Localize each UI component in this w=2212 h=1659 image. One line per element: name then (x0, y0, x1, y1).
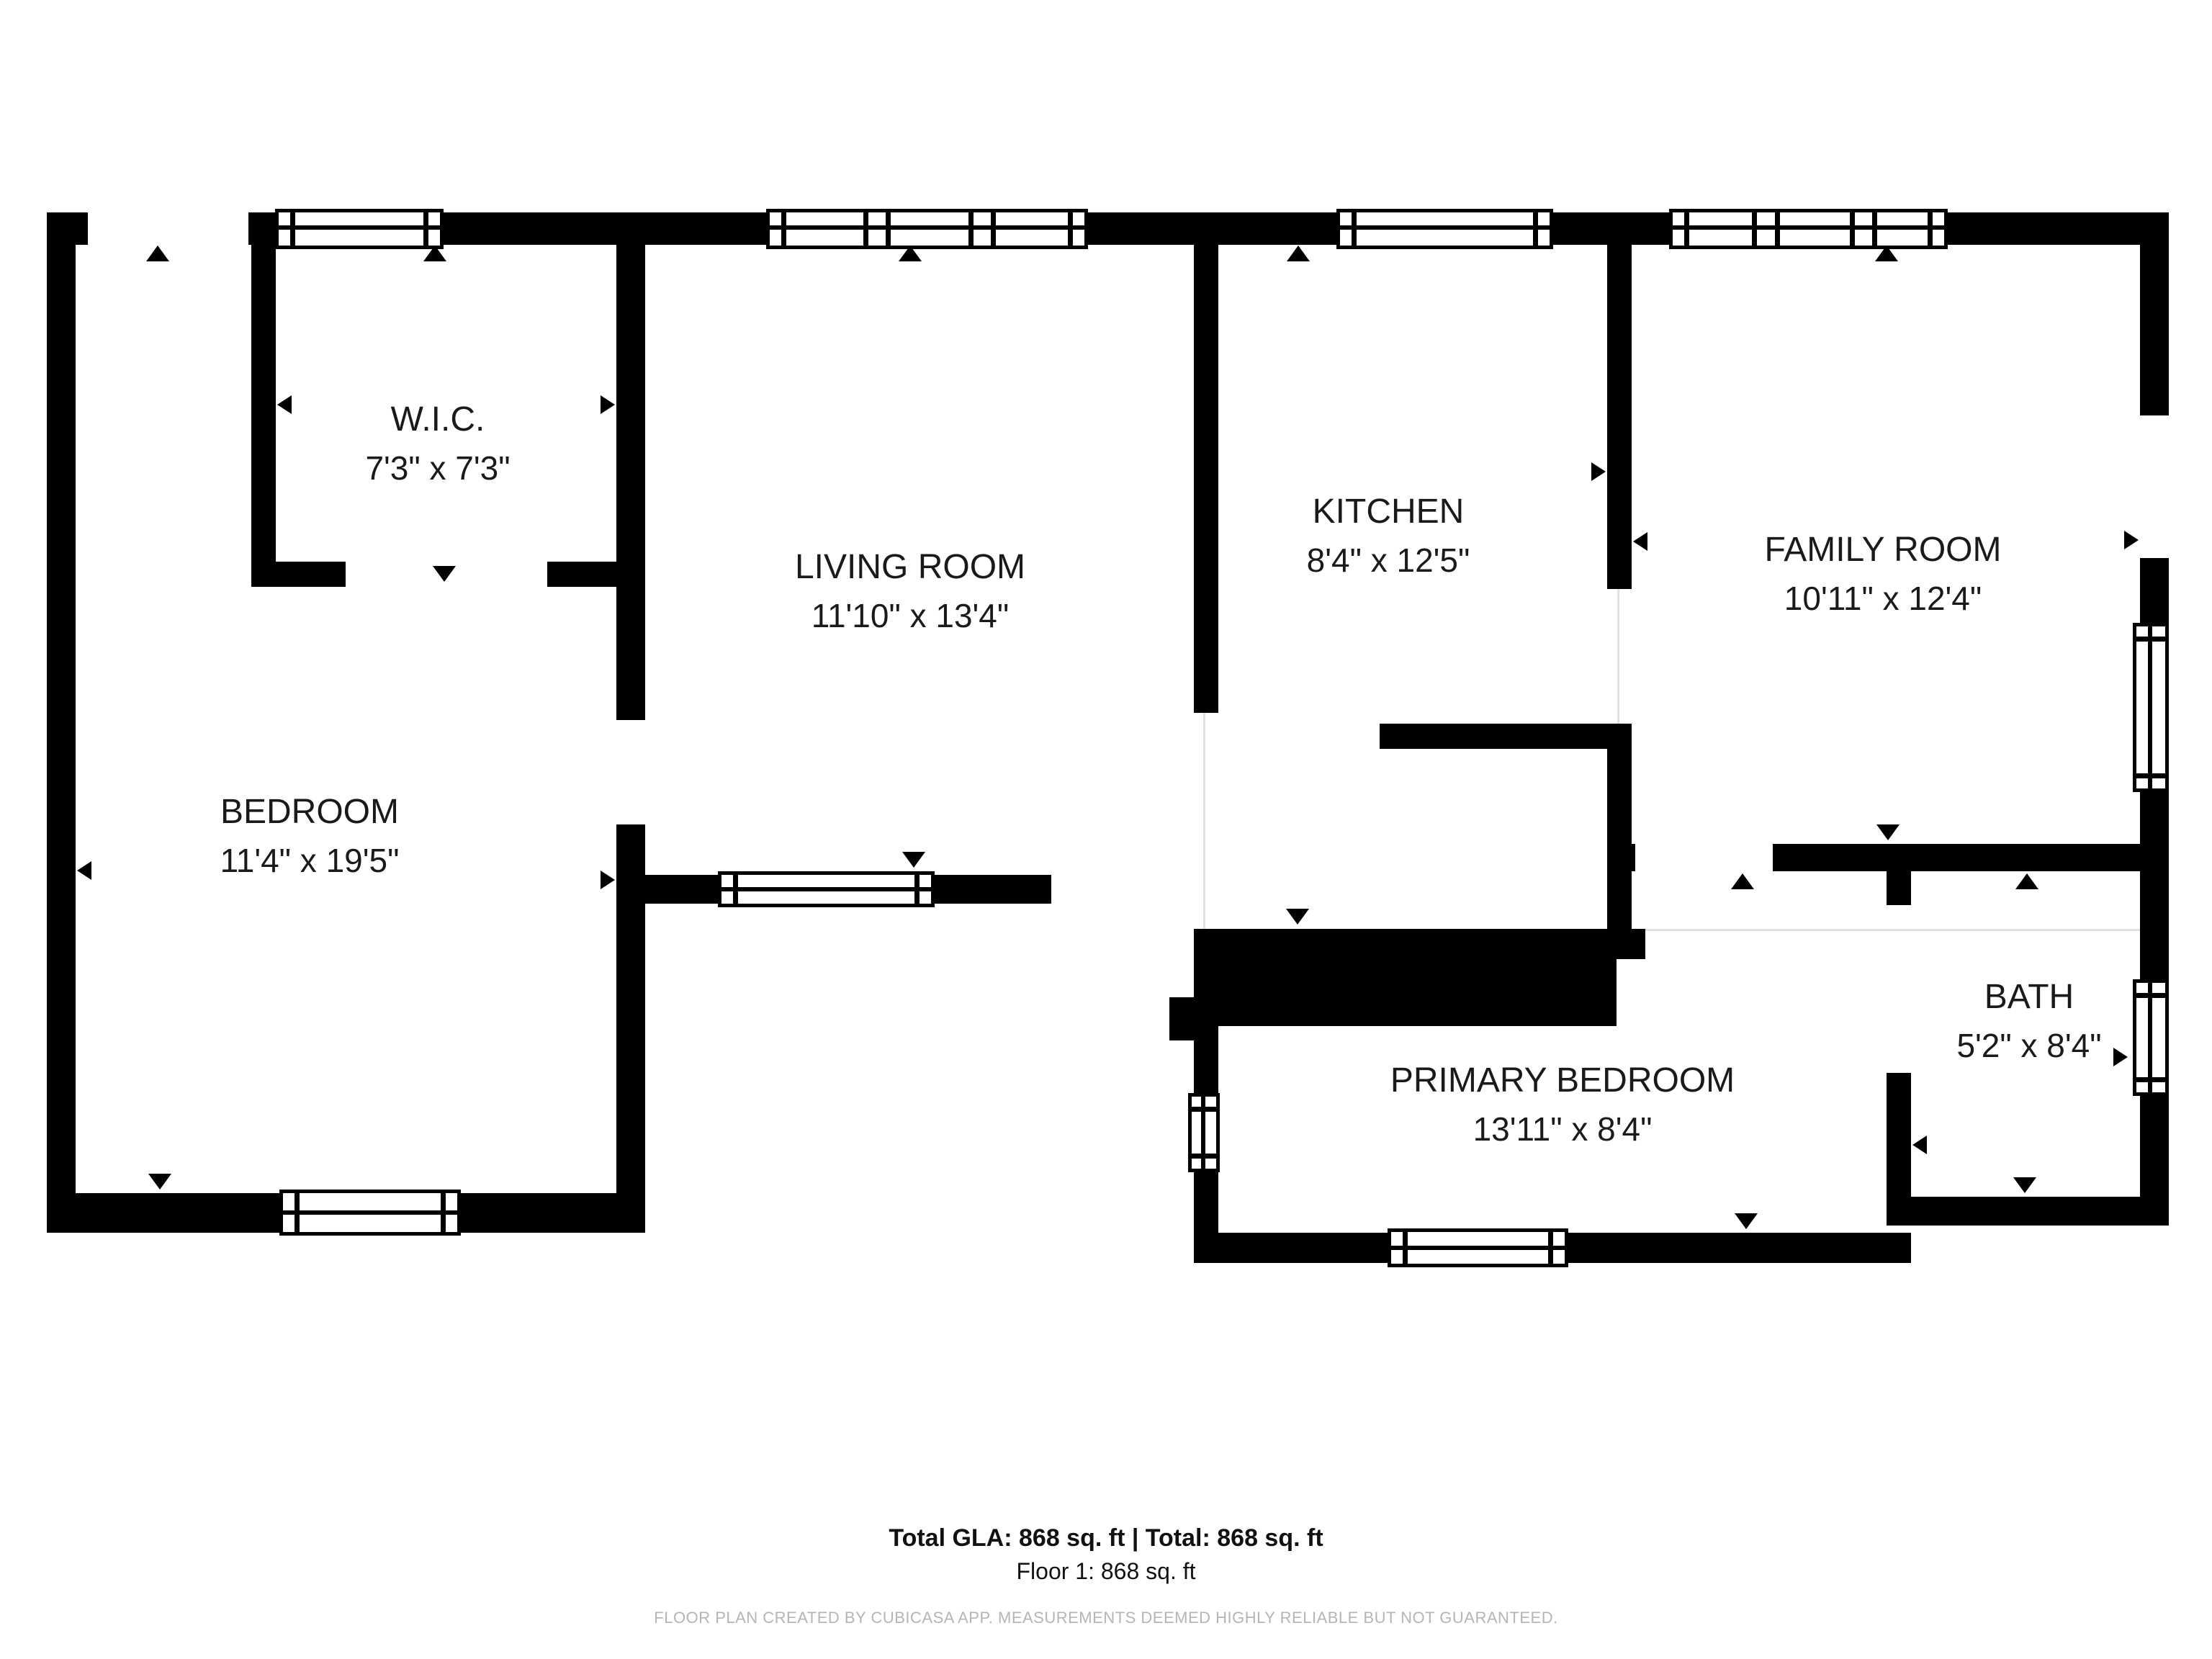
room-label-family-room: FAMILY ROOM 10'11" x 12'4" (1765, 524, 2002, 621)
floor-area-text: Floor 1: 868 sq. ft (0, 1555, 2212, 1587)
door-direction-icon (1875, 246, 1898, 261)
door-direction-icon (433, 566, 456, 582)
wall (1607, 749, 1632, 930)
door-direction-icon (146, 246, 169, 261)
room-dimensions: 7'3" x 7'3" (365, 446, 510, 490)
footer: Total GLA: 868 sq. ft | Total: 868 sq. f… (0, 1521, 2212, 1627)
wall (616, 212, 645, 720)
door-direction-icon (1912, 1136, 1927, 1154)
wall (2140, 212, 2169, 415)
door-direction-icon (1287, 246, 1310, 261)
door-direction-icon (2015, 873, 2038, 889)
room-dimensions: 8'4" x 12'5" (1307, 538, 1470, 583)
room-label-wic: W.I.C. 7'3" x 7'3" (365, 394, 510, 490)
window (2133, 623, 2169, 792)
window (1188, 1093, 1220, 1172)
wall (1773, 844, 2140, 871)
window-mullion (991, 212, 996, 246)
door-direction-icon (1876, 824, 1899, 840)
window-mullion (886, 212, 891, 246)
door-direction-icon (899, 246, 922, 261)
room-dimensions: 10'11" x 12'4" (1765, 576, 2002, 621)
wall (1194, 929, 1617, 1026)
door-direction-icon (1591, 462, 1606, 481)
room-dimensions: 13'11" x 8'4" (1390, 1107, 1735, 1151)
room-name: BATH (1956, 971, 2101, 1023)
disclaimer-text: FLOOR PLAN CREATED BY CUBICASA APP. MEAS… (0, 1609, 2212, 1627)
room-label-bedroom: BEDROOM 11'4" x 19'5" (220, 786, 400, 883)
room-name: FAMILY ROOM (1765, 524, 2002, 576)
window (766, 209, 1088, 249)
room-dimensions: 11'4" x 19'5" (220, 838, 400, 883)
window-mullion (1752, 212, 1757, 246)
window-mullion (1850, 212, 1855, 246)
window-mullion (1775, 212, 1780, 246)
opening-guide-line (1617, 589, 1619, 724)
door-direction-icon (423, 246, 446, 261)
door-direction-icon (601, 395, 615, 414)
window (275, 209, 444, 249)
wall (1607, 245, 1632, 589)
window (1388, 1228, 1568, 1267)
door-direction-icon (1286, 909, 1309, 925)
wall (1194, 245, 1218, 713)
wall (1380, 724, 1632, 749)
window (718, 871, 935, 907)
opening-guide-line (1203, 713, 1205, 929)
door-direction-icon (902, 852, 925, 868)
door-direction-icon (277, 395, 292, 414)
wall (1169, 997, 1194, 1040)
door-direction-icon (2124, 531, 2139, 549)
room-dimensions: 5'2" x 8'4" (1956, 1023, 2101, 1068)
room-name: KITCHEN (1307, 486, 1470, 538)
window (1669, 209, 1948, 249)
room-label-primary-bedroom: PRIMARY BEDROOM 13'11" x 8'4" (1390, 1055, 1735, 1151)
wall (251, 212, 276, 587)
door-direction-icon (2013, 1177, 2036, 1193)
window (279, 1190, 461, 1236)
room-name: LIVING ROOM (795, 541, 1025, 593)
room-label-kitchen: KITCHEN 8'4" x 12'5" (1307, 486, 1470, 583)
door-direction-icon (1633, 532, 1647, 551)
wall (47, 212, 76, 1233)
room-label-living-room: LIVING ROOM 11'10" x 13'4" (795, 541, 1025, 638)
opening-guide-line (1645, 929, 2140, 931)
room-name: BEDROOM (220, 786, 400, 838)
wall (2140, 1096, 2169, 1226)
wall (251, 562, 346, 587)
wall (1617, 929, 1645, 959)
door-direction-icon (1735, 1213, 1758, 1229)
window (1336, 209, 1553, 249)
wall (2140, 792, 2169, 979)
window (2133, 979, 2169, 1096)
door-direction-icon (77, 861, 91, 880)
door-direction-icon (148, 1174, 171, 1190)
room-dimensions: 11'10" x 13'4" (795, 593, 1025, 638)
window-mullion (968, 212, 974, 246)
wall (1887, 1197, 2169, 1226)
total-area-text: Total GLA: 868 sq. ft | Total: 868 sq. f… (0, 1521, 2212, 1555)
wall (1887, 871, 1911, 905)
floor-plan: W.I.C. 7'3" x 7'3" LIVING ROOM 11'10" x … (0, 0, 2212, 1659)
window-mullion (1872, 212, 1877, 246)
room-label-bath: BATH 5'2" x 8'4" (1956, 971, 2101, 1068)
door-direction-icon (2113, 1048, 2128, 1066)
window-mullion (863, 212, 868, 246)
door-direction-icon (601, 871, 615, 889)
door-direction-icon (1731, 873, 1754, 889)
wall (1617, 844, 1635, 871)
room-name: W.I.C. (365, 394, 510, 446)
wall (2140, 558, 2169, 623)
room-name: PRIMARY BEDROOM (1390, 1055, 1735, 1107)
wall (547, 562, 645, 587)
